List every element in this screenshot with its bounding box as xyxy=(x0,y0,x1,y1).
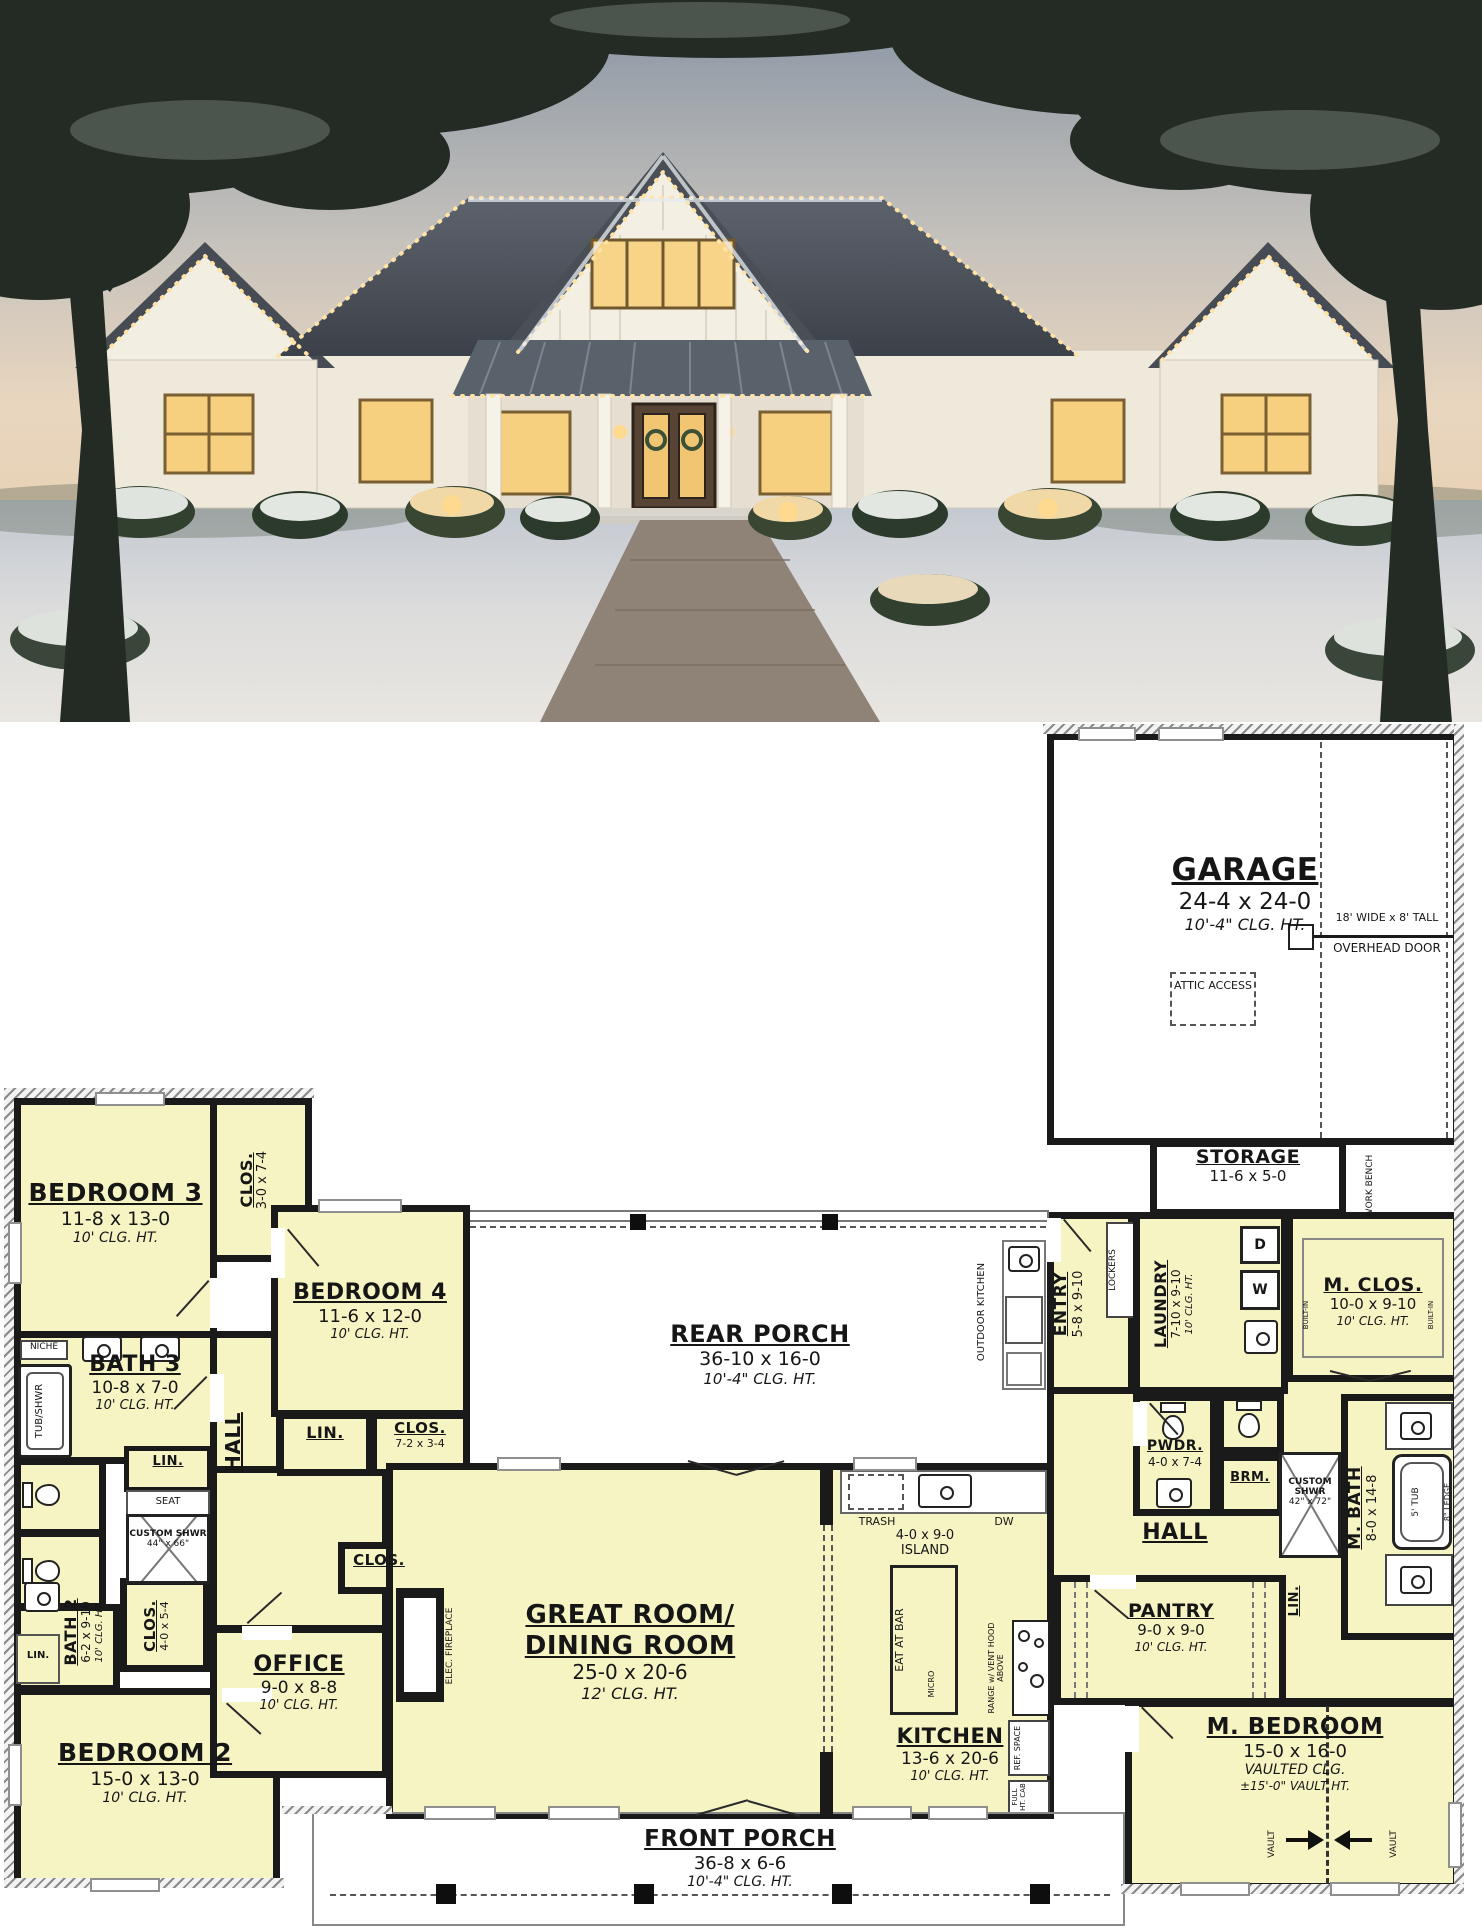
room-linen-hall xyxy=(277,1412,373,1476)
micro-label: MICRO xyxy=(928,1662,948,1706)
vault-arrow-head xyxy=(1308,1830,1324,1850)
island-dims-label: 4-0 x 9-0 ISLAND xyxy=(860,1528,990,1559)
double-door-icon xyxy=(1330,1370,1410,1384)
dishwasher-label: DW xyxy=(982,1516,1026,1528)
master-closet-label: M. CLOS. 10-0 x 9-10 10' CLG. HT. xyxy=(1308,1274,1438,1328)
window xyxy=(90,1878,160,1892)
office-label: OFFICE 9-0 x 8-8 10' CLG. HT. xyxy=(215,1652,383,1713)
outdoor-kitchen-label: OUTDOOR KITCHEN xyxy=(976,1246,998,1378)
vanity-sink-icon xyxy=(1400,1412,1432,1440)
vault-label: VAULT xyxy=(1390,1814,1404,1874)
linen-label: LIN. xyxy=(1284,1566,1314,1636)
trash-pullout xyxy=(848,1474,904,1510)
built-in-label: BUILT-IN xyxy=(1428,1280,1442,1350)
toilet-icon xyxy=(22,1480,64,1510)
vault-label: VAULT xyxy=(1268,1814,1282,1874)
window xyxy=(853,1457,917,1471)
wall-hatch xyxy=(282,1806,392,1814)
broom-label: BRM. xyxy=(1219,1470,1281,1485)
kitchen-label: KITCHEN 13-6 x 20-6 10' CLG. HT. xyxy=(870,1724,1030,1784)
niche-label: NICHE xyxy=(21,1343,67,1353)
front-double-door-icon xyxy=(696,1800,800,1818)
front-porch-label: FRONT PORCH 36-8 x 6-6 10'-4" CLG. HT. xyxy=(555,1826,925,1891)
kitchen-divider-stub xyxy=(820,1752,833,1814)
vault-arrow-head xyxy=(1334,1830,1350,1850)
door-opening xyxy=(242,1626,292,1640)
house-photo-illustration xyxy=(0,0,1482,722)
window xyxy=(1158,727,1224,741)
range-label: RANGE w/ VENT HOOD ABOVE xyxy=(988,1610,1012,1726)
laundry-label: LAUNDRY 7-10 x 9-10 10' CLG. HT. xyxy=(1152,1234,1210,1374)
window xyxy=(1180,1882,1250,1896)
bedroom4-label: BEDROOM 4 11-6 x 12-0 10' CLG. HT. xyxy=(265,1280,475,1343)
room-garage xyxy=(1047,733,1460,1145)
overhead-door-dim-line xyxy=(1314,935,1454,938)
window xyxy=(95,1092,165,1106)
door-opening xyxy=(1125,1706,1139,1752)
tub-shwr-label: TUB/SHWR xyxy=(34,1370,54,1452)
porch-post xyxy=(630,1214,646,1230)
door-opening xyxy=(210,1278,224,1328)
pantry-shelf-line xyxy=(1252,1582,1254,1698)
linen-hall-label: LIN. xyxy=(281,1424,369,1443)
hall-label: HALL xyxy=(222,1382,268,1502)
eat-at-bar-label: EAT AT BAR xyxy=(894,1582,914,1698)
master-bedroom-label: M. BEDROOM 15-0 x 16-0 VAULTED CLG. ±15'… xyxy=(1150,1714,1440,1793)
exterior-photo xyxy=(0,0,1482,722)
floor-plan: GARAGE 24-4 x 24-0 10'-4" CLG. HT. 18' W… xyxy=(0,722,1482,1929)
elec-fireplace-label: ELEC. FIREPLACE xyxy=(446,1590,464,1702)
porch-post xyxy=(1030,1884,1050,1904)
overhead-door-label: OVERHEAD DOOR xyxy=(1322,942,1452,955)
rear-double-door-icon xyxy=(688,1458,784,1476)
dryer-icon: D xyxy=(1240,1226,1280,1264)
hall-shower-label: CUSTOM SHWR 44" x 66" xyxy=(128,1530,208,1550)
range-icon xyxy=(1012,1620,1050,1716)
washer-icon: W xyxy=(1240,1270,1280,1310)
closet-bed2-label: CLOS. 4-0 x 5-4 xyxy=(142,1586,192,1666)
toilet-icon xyxy=(1234,1400,1264,1442)
pantry-shelf-line xyxy=(1086,1582,1088,1698)
closet-hall-label: CLOS. 7-2 x 3-4 xyxy=(372,1420,468,1451)
kitchen-divider-dash xyxy=(831,1525,833,1752)
seat-label: SEAT xyxy=(128,1496,208,1507)
powder-sink-icon xyxy=(1156,1478,1192,1508)
closet-bed3-label: CLOS. 3-0 x 7-4 xyxy=(238,1118,294,1242)
bedroom3-label: BEDROOM 3 11-8 x 13-0 10' CLG. HT. xyxy=(18,1178,213,1246)
wall-hatch xyxy=(1121,1884,1464,1894)
wall-hatch xyxy=(1454,724,1464,1892)
work-bench-label: WORK BENCH xyxy=(1366,1140,1386,1232)
kitchen-divider-dash xyxy=(823,1525,825,1752)
rear-porch-label: REAR PORCH 36-10 x 16-0 10'-4" CLG. HT. xyxy=(600,1320,920,1388)
ledge-label: 8" LEDGE xyxy=(1444,1462,1455,1542)
window xyxy=(318,1199,402,1213)
door-opening xyxy=(1090,1575,1136,1589)
vault-arrow xyxy=(1286,1838,1308,1842)
linen-label: LIN. xyxy=(17,1650,59,1661)
window xyxy=(497,1457,561,1471)
overhead-door-bay-line xyxy=(1446,742,1448,1138)
bath2-label: BATH 2 6-2 x 9-10 10' CLG. HT. xyxy=(62,1570,118,1694)
trash-label: TRASH xyxy=(845,1516,909,1528)
attic-access-label: ATTIC ACCESS xyxy=(1172,980,1254,993)
window xyxy=(424,1806,496,1820)
overhead-door-size-label: 18' WIDE x 8' TALL xyxy=(1322,912,1452,924)
powder-label: PWDR. 4-0 x 7-4 xyxy=(1135,1438,1215,1469)
tub-label: 5' TUB xyxy=(1412,1470,1428,1534)
entry-label: ENTRY 5-8 x 9-10 xyxy=(1052,1242,1104,1366)
pantry-label: PANTRY 9-0 x 9-0 10' CLG. HT. xyxy=(1096,1600,1246,1654)
window xyxy=(852,1806,912,1820)
fireplace-opening xyxy=(404,1598,436,1692)
built-in-label: BUILT-IN xyxy=(1303,1280,1317,1350)
rear-porch-beam xyxy=(467,1210,1049,1222)
window xyxy=(1078,727,1136,741)
storage-label: STORAGE 11-6 x 5-0 xyxy=(1155,1146,1341,1186)
master-bath-label: M. BATH 8-0 x 14-8 xyxy=(1346,1440,1390,1576)
outdoor-sink-icon xyxy=(1008,1246,1040,1272)
kitchen-divider-stub xyxy=(820,1463,833,1525)
pantry-shelf-line xyxy=(1264,1582,1266,1698)
linen-small-label: LIN. xyxy=(128,1454,208,1469)
bath3-label: BATH 3 10-8 x 7-0 10' CLG. HT. xyxy=(60,1352,210,1413)
window xyxy=(928,1806,988,1820)
outdoor-grill-icon xyxy=(1005,1296,1043,1344)
porch-post xyxy=(822,1214,838,1230)
kitchen-sink-icon xyxy=(918,1474,972,1508)
hall-label: HALL xyxy=(1120,1520,1230,1546)
window xyxy=(548,1806,620,1820)
master-shower-label: CUSTOM SHWR 42" x 72" xyxy=(1280,1478,1340,1508)
bath2-sink-icon xyxy=(24,1582,60,1612)
pantry-shelf-line xyxy=(1074,1582,1076,1698)
window xyxy=(1330,1882,1400,1896)
rear-porch-dash xyxy=(470,1226,1046,1228)
vanity-sink-icon xyxy=(1400,1566,1432,1594)
vault-arrow xyxy=(1350,1838,1372,1842)
closet-office-label: CLOS. xyxy=(340,1552,418,1570)
outdoor-cabinet xyxy=(1006,1352,1042,1386)
page: { "plan": { "rooms": { "garage": {"name"… xyxy=(0,0,1482,1929)
window xyxy=(1448,1802,1462,1868)
full-ht-cab-label: FULL HT. CAB xyxy=(1012,1782,1046,1812)
lockers-label: LOCKERS xyxy=(1109,1224,1133,1316)
porch-post xyxy=(436,1884,456,1904)
overhead-door-bay-line xyxy=(1320,742,1322,1138)
ref-space-label: REF. SPACE xyxy=(1014,1724,1044,1772)
bedroom2-label: BEDROOM 2 15-0 x 13-0 10' CLG. HT. xyxy=(25,1738,265,1806)
window xyxy=(8,1744,22,1806)
great-room-label: GREAT ROOM/ DINING ROOM 25-0 x 20-6 12' … xyxy=(480,1600,780,1704)
laundry-sink-icon xyxy=(1244,1320,1278,1354)
